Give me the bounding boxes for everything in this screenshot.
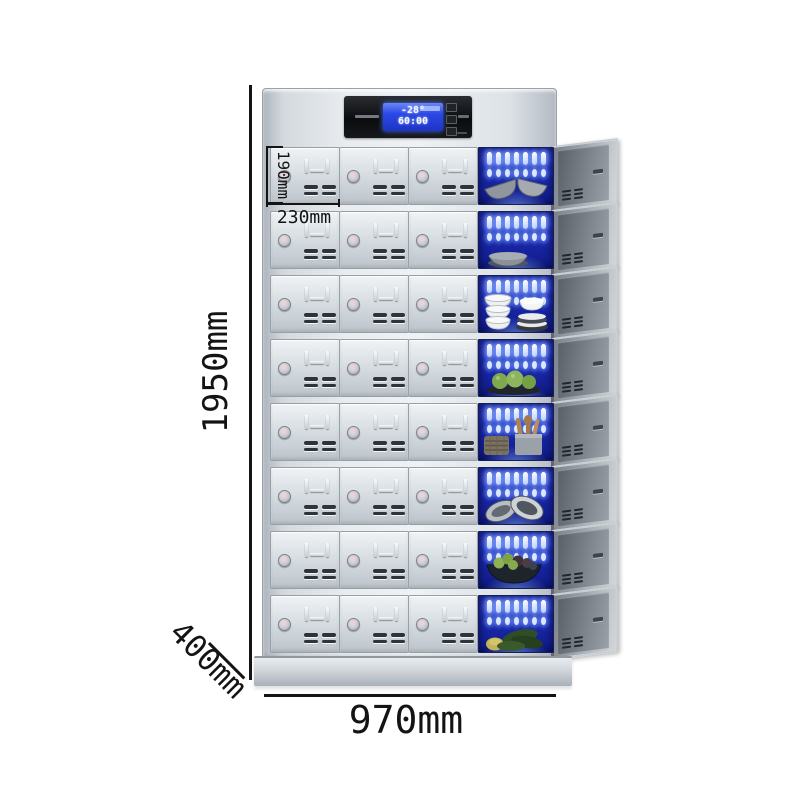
locker-door: [339, 467, 409, 525]
door-handle-icon: [443, 223, 467, 237]
contents-produce-basket: [480, 542, 552, 588]
vent-slots-icon: [442, 313, 474, 323]
door-handle-icon: [305, 287, 329, 301]
vent-slots-icon: [304, 185, 336, 195]
contents-grey-bowl: [480, 222, 552, 268]
lock-icon: [347, 298, 360, 311]
locker-door: [408, 211, 478, 269]
locker-row: [266, 528, 554, 592]
door-handle-icon: [374, 223, 398, 237]
open-compartment-green-fruits: [478, 339, 554, 397]
open-door-panel: [551, 266, 618, 340]
lock-icon: [416, 490, 429, 503]
door-handle-icon: [443, 159, 467, 173]
lcd-readout: -28° 60:00: [383, 105, 443, 127]
locker-door: [339, 531, 409, 589]
lcd-timer: 60:00: [398, 116, 428, 127]
open-door-panel: [551, 522, 618, 596]
door-handle-icon: [443, 415, 467, 429]
door-handle-icon: [305, 159, 329, 173]
door-handle-icon: [374, 607, 398, 621]
lock-icon: [278, 426, 291, 439]
open-compartment-vegetables: [478, 595, 554, 653]
lock-icon: [347, 490, 360, 503]
lock-icon: [416, 234, 429, 247]
door-handle-icon: [374, 479, 398, 493]
locker-door: [270, 403, 340, 461]
vent-slots-icon: [442, 249, 474, 259]
locker-door: [408, 403, 478, 461]
contents-green-fruits: [480, 350, 552, 396]
open-compartment-produce-basket: [478, 531, 554, 589]
locker-door: [408, 147, 478, 205]
vent-slots-icon: [304, 441, 336, 451]
locker-row: [266, 272, 554, 336]
vent-slots-icon: [373, 249, 405, 259]
panel-buttons: [446, 103, 457, 136]
vent-slots-icon: [442, 633, 474, 643]
open-compartment-grey-bowl: [478, 211, 554, 269]
locker-door: [408, 339, 478, 397]
panel-label-left: [355, 115, 379, 118]
dimension-depth-label: 400mm: [144, 596, 271, 723]
lock-icon: [347, 618, 360, 631]
door-handle-icon: [374, 543, 398, 557]
vent-slots-icon: [442, 505, 474, 515]
open-door-panel: [551, 394, 618, 468]
lock-icon: [347, 362, 360, 375]
open-door-panel: [551, 330, 618, 404]
vent-slots-icon: [373, 633, 405, 643]
lock-icon: [416, 554, 429, 567]
locker-door: [270, 531, 340, 589]
locker-row: [266, 592, 554, 656]
lock-icon: [278, 618, 291, 631]
door-handle-icon: [374, 159, 398, 173]
vent-slots-icon: [304, 377, 336, 387]
contents-grey-bowls: [480, 158, 552, 204]
contents-wooden-utensils: [480, 414, 552, 460]
locker-row: [266, 144, 554, 208]
lock-icon: [416, 298, 429, 311]
open-door-panel: [551, 586, 618, 660]
control-panel: -28° 60:00: [344, 96, 472, 138]
vent-slots-icon: [373, 185, 405, 195]
locker-door: [339, 595, 409, 653]
door-handle-icon: [443, 543, 467, 557]
door-handle-icon: [374, 287, 398, 301]
locker-door: [270, 339, 340, 397]
lock-icon: [278, 490, 291, 503]
lock-icon: [416, 618, 429, 631]
vent-slots-icon: [442, 377, 474, 387]
vent-slots-icon: [373, 377, 405, 387]
vent-slots-icon: [373, 505, 405, 515]
locker-door: [339, 211, 409, 269]
locker-row: [266, 400, 554, 464]
lock-icon: [347, 234, 360, 247]
contents-white-dishes: [480, 286, 552, 332]
panel-button: [446, 115, 457, 124]
door-handle-icon: [374, 351, 398, 365]
cabinet-base: [254, 656, 572, 686]
open-compartment-grey-bowls: [478, 147, 554, 205]
locker-door: [339, 403, 409, 461]
door-handle-icon: [305, 543, 329, 557]
contents-metal-strainers: [480, 478, 552, 524]
door-handle-icon: [443, 351, 467, 365]
dimension-height-line: [249, 85, 252, 680]
lock-icon: [347, 170, 360, 183]
lock-icon: [278, 298, 291, 311]
lcd-display: -28° 60:00: [383, 103, 443, 131]
vent-slots-icon: [304, 249, 336, 259]
locker-door: [408, 531, 478, 589]
panel-button: [446, 103, 457, 112]
lock-icon: [416, 170, 429, 183]
locker-door: [408, 595, 478, 653]
lock-icon: [278, 362, 291, 375]
door-handle-icon: [443, 479, 467, 493]
door-handle-icon: [443, 607, 467, 621]
door-handle-icon: [374, 415, 398, 429]
lock-icon: [278, 554, 291, 567]
door-handle-icon: [305, 415, 329, 429]
contents-vegetables: [480, 606, 552, 652]
lcd-temperature: -28°: [401, 105, 425, 116]
dimension-compartment-width-label: 230mm: [268, 207, 340, 228]
locker-door: [270, 275, 340, 333]
door-handle-icon: [305, 479, 329, 493]
vent-slots-icon: [373, 441, 405, 451]
vent-slots-icon: [304, 313, 336, 323]
vent-slots-icon: [442, 441, 474, 451]
door-handle-icon: [305, 607, 329, 621]
lock-icon: [416, 426, 429, 439]
lock-icon: [278, 234, 291, 247]
vent-slots-icon: [304, 633, 336, 643]
vent-slots-icon: [442, 185, 474, 195]
open-door-panel: [551, 138, 618, 212]
lock-icon: [347, 554, 360, 567]
dimension-compartment-height-label: 190mm: [274, 145, 292, 205]
dimension-compartment-height-line: [266, 146, 268, 204]
open-door-panel: [551, 202, 618, 276]
vent-slots-icon: [373, 313, 405, 323]
open-compartment-wooden-utensils: [478, 403, 554, 461]
vent-slots-icon: [442, 569, 474, 579]
vent-slots-icon: [304, 505, 336, 515]
locker-door: [339, 339, 409, 397]
locker-door: [339, 275, 409, 333]
door-handle-icon: [305, 351, 329, 365]
locker-door: [408, 275, 478, 333]
panel-model-text: [457, 132, 467, 134]
locker-row: [266, 336, 554, 400]
locker-row: [266, 464, 554, 528]
dimension-height-label: 1950mm: [196, 302, 236, 442]
panel-button: [446, 127, 457, 136]
open-door-panel: [551, 458, 618, 532]
dimension-width-line: [264, 694, 556, 697]
locker-door: [270, 595, 340, 653]
lock-icon: [347, 426, 360, 439]
vent-slots-icon: [373, 569, 405, 579]
locker-door: [408, 467, 478, 525]
open-compartment-metal-strainers: [478, 467, 554, 525]
open-compartment-white-dishes: [478, 275, 554, 333]
locker-door: [339, 147, 409, 205]
door-handle-icon: [443, 287, 467, 301]
dimension-width-label: 970mm: [306, 698, 506, 742]
panel-label-right: [458, 115, 469, 118]
lock-icon: [416, 362, 429, 375]
locker-door: [270, 467, 340, 525]
product-image: 1950mm 970mm 400mm 190mm 230mm -28° 60:0…: [0, 0, 800, 800]
vent-slots-icon: [304, 569, 336, 579]
